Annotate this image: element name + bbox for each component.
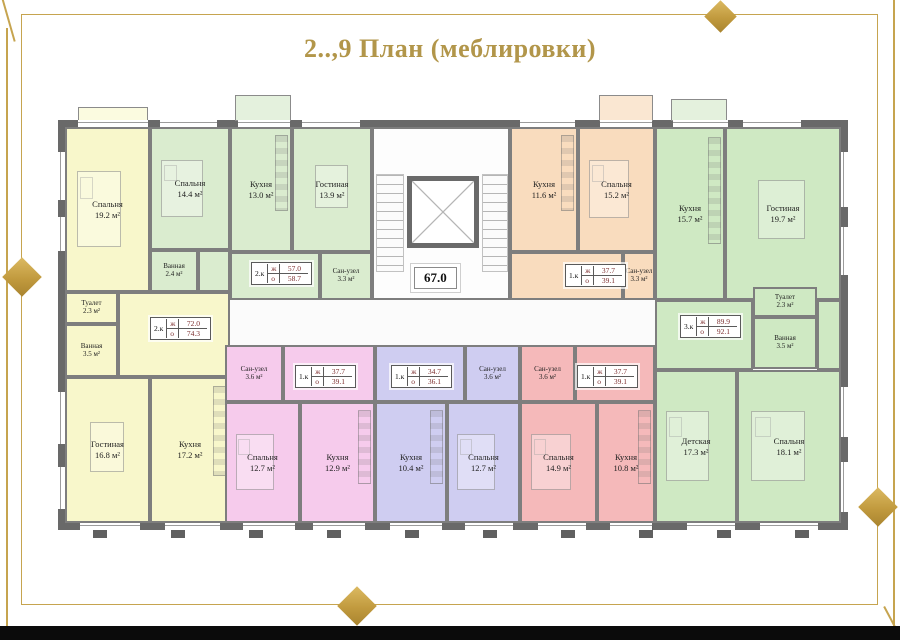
window (520, 120, 575, 127)
balcony (78, 107, 148, 121)
bottom-black-bar (0, 626, 900, 640)
apt3-kitchen: Кухня15.7 м² (655, 127, 725, 300)
window (538, 523, 586, 530)
apt6-spec-label: 1.к ж37.7 о39.1 (577, 365, 638, 388)
apt5-sanuzel: Сан-узел3.6 м² (465, 345, 520, 402)
window (58, 217, 65, 251)
apt5-kitchen: Кухня10.4 м² (375, 402, 447, 523)
window (243, 523, 295, 530)
elevator-x-icon (412, 181, 474, 243)
window (760, 523, 818, 530)
elevator-shaft (407, 176, 479, 248)
page-title: 2..,9 План (меблировки) (0, 34, 900, 64)
apt3-spec-label: 3.к ж89.9 о92.1 (680, 315, 741, 338)
window (743, 120, 801, 127)
apt2-spec-label: 1.к ж37.7 о39.1 (565, 264, 626, 287)
apt3-living-room: Гостиная19.7 м² (725, 127, 841, 300)
apt3-bedroom: Спальня18.1 м² (737, 370, 841, 523)
stairs-right (482, 174, 508, 272)
apt0-kitchen: Кухня17.2 м² (150, 377, 230, 523)
stair-core: 67.0 (372, 127, 510, 300)
apt0-living-room: Гостиная16.8 м² (65, 377, 150, 523)
apt4-spec-label: 1.к ж37.7 о39.1 (295, 365, 356, 388)
apt1-bedroom: Спальня14.4 м² (150, 127, 230, 250)
apt1-sanuzel: Сан-узел3.3 м² (320, 252, 372, 300)
apt4-bedroom: Спальня12.7 м² (225, 402, 300, 523)
window (390, 523, 442, 530)
gold-outer-line-left (6, 28, 8, 626)
page: { "title": "2..,9 План (меблировки)", "c… (0, 0, 900, 640)
gold-diamond-top-icon (704, 0, 737, 33)
apt4-kitchen: Кухня12.9 м² (300, 402, 375, 523)
apt2-sanuzel: Сан-узел3.3 м² (623, 252, 655, 300)
apt6-kitchen: Кухня10.8 м² (597, 402, 655, 523)
stairs-left (376, 174, 404, 272)
balcony (235, 95, 291, 121)
apt2-kitchen: Кухня11.6 м² (510, 127, 578, 252)
apt5-spec-label: 1.к ж34.7 о36.1 (391, 365, 452, 388)
apt1-bathroom: Ванная2.4 м² (150, 250, 198, 292)
window (58, 467, 65, 509)
window (160, 120, 217, 127)
window (238, 120, 290, 127)
apt2-bedroom: Спальня15.2 м² (578, 127, 655, 252)
window (687, 523, 735, 530)
window (841, 462, 848, 512)
window (165, 523, 220, 530)
window (465, 523, 513, 530)
apt4-sanuzel: Сан-узел3.6 м² (225, 345, 283, 402)
gold-diamond-left-icon (2, 257, 42, 297)
apt1-kitchen: Кухня13.0 м² (230, 127, 292, 252)
window (58, 152, 65, 200)
gold-outer-line-right (893, 0, 895, 626)
window (600, 120, 652, 127)
window (841, 152, 848, 207)
apt6-bedroom: Спальня14.9 м² (520, 402, 597, 523)
window (841, 387, 848, 437)
apt0-toilet: Туалет2.3 м² (65, 292, 118, 324)
apt0-bedroom: Спальня19.2 м² (65, 127, 150, 292)
window (841, 227, 848, 275)
apt3-kids-room: Детская17.3 м² (655, 370, 737, 523)
balcony (671, 99, 727, 121)
gold-diamond-bottom-icon (337, 586, 377, 626)
window (302, 120, 360, 127)
apt1-living-room: Гостиная13.9 м² (292, 127, 372, 252)
window (610, 523, 652, 530)
window (58, 392, 65, 444)
corridor-area-label: 67.0 (414, 267, 457, 289)
apt3-bathroom: Ванная3.5 м² (753, 317, 817, 369)
apt1-spec-label: 2.к ж57.0 о58.7 (251, 262, 312, 285)
window (78, 120, 148, 127)
apt5-bedroom: Спальня12.7 м² (447, 402, 520, 523)
gold-diamond-right-icon (858, 487, 898, 527)
window (313, 523, 365, 530)
window (80, 523, 140, 530)
window (673, 120, 728, 127)
floor-plan: Спальня19.2 м² Туалет2.3 м² Ванная3.5 м²… (58, 120, 848, 530)
balcony (599, 95, 653, 121)
apt6-sanuzel: Сан-узел3.6 м² (520, 345, 575, 402)
apt0-bathroom: Ванная3.5 м² (65, 324, 118, 377)
apt1-hall-small (198, 250, 230, 292)
apt3-toilet: Туалет2.3 м² (753, 287, 817, 317)
apt3-filler (817, 300, 841, 370)
apt0-spec-label: 2.к ж72.0 о74.3 (150, 317, 211, 340)
